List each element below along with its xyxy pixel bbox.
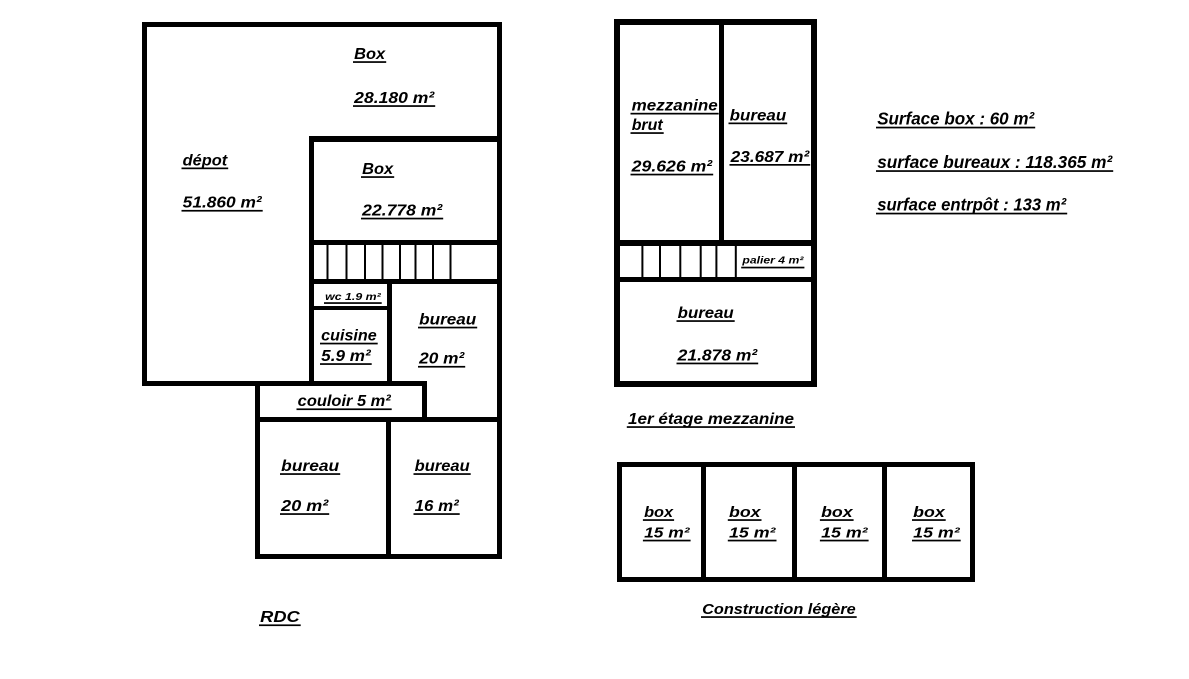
svg-text:5.9 m²: 5.9 m² bbox=[321, 348, 371, 365]
svg-text:23.687 m²: 23.687 m² bbox=[730, 149, 810, 166]
svg-text:surface entrpôt : 133 m²: surface entrpôt : 133 m² bbox=[877, 195, 1067, 215]
svg-text:bureau: bureau bbox=[281, 458, 339, 475]
svg-text:bureau: bureau bbox=[415, 458, 470, 475]
svg-text:brut: brut bbox=[632, 117, 664, 134]
svg-text:RDC: RDC bbox=[260, 609, 300, 626]
svg-text:1er étage mezzanine: 1er étage mezzanine bbox=[628, 411, 794, 428]
svg-text:bureau: bureau bbox=[419, 312, 476, 329]
svg-text:bureau: bureau bbox=[678, 305, 734, 322]
svg-text:15 m²: 15 m² bbox=[821, 526, 869, 542]
svg-text:20 m²: 20 m² bbox=[418, 351, 465, 368]
svg-text:box: box bbox=[644, 505, 674, 521]
svg-text:51.860 m²: 51.860 m² bbox=[183, 195, 263, 212]
svg-text:15 m²: 15 m² bbox=[644, 526, 691, 542]
svg-text:29.626 m²: 29.626 m² bbox=[631, 159, 713, 176]
svg-text:mezzanine: mezzanine bbox=[632, 98, 718, 115]
svg-text:box: box bbox=[913, 505, 946, 521]
svg-text:box: box bbox=[729, 505, 762, 521]
svg-text:surface bureaux : 118.365 m²: surface bureaux : 118.365 m² bbox=[877, 152, 1113, 172]
svg-text:20 m²: 20 m² bbox=[280, 498, 329, 515]
svg-text:15 m²: 15 m² bbox=[729, 526, 777, 542]
svg-text:couloir 5 m²: couloir 5 m² bbox=[298, 393, 392, 410]
svg-text:cuisine: cuisine bbox=[321, 328, 377, 345]
svg-text:box: box bbox=[821, 505, 854, 521]
svg-text:Construction légère: Construction légère bbox=[702, 602, 856, 618]
svg-text:15 m²: 15 m² bbox=[913, 526, 961, 542]
svg-text:28.180 m²: 28.180 m² bbox=[353, 90, 435, 107]
svg-text:16 m²: 16 m² bbox=[415, 498, 460, 515]
svg-text:Box: Box bbox=[354, 46, 386, 63]
svg-text:dépot: dépot bbox=[183, 152, 228, 169]
svg-text:21.878 m²: 21.878 m² bbox=[677, 347, 758, 364]
svg-text:Box: Box bbox=[362, 161, 394, 178]
svg-text:palier 4 m²: palier 4 m² bbox=[741, 255, 804, 267]
svg-text:22.778 m²: 22.778 m² bbox=[361, 203, 443, 220]
svg-text:bureau: bureau bbox=[730, 107, 787, 124]
svg-text:Surface box : 60 m²: Surface box : 60 m² bbox=[877, 109, 1035, 129]
svg-text:wc 1.9 m²: wc 1.9 m² bbox=[325, 291, 381, 303]
